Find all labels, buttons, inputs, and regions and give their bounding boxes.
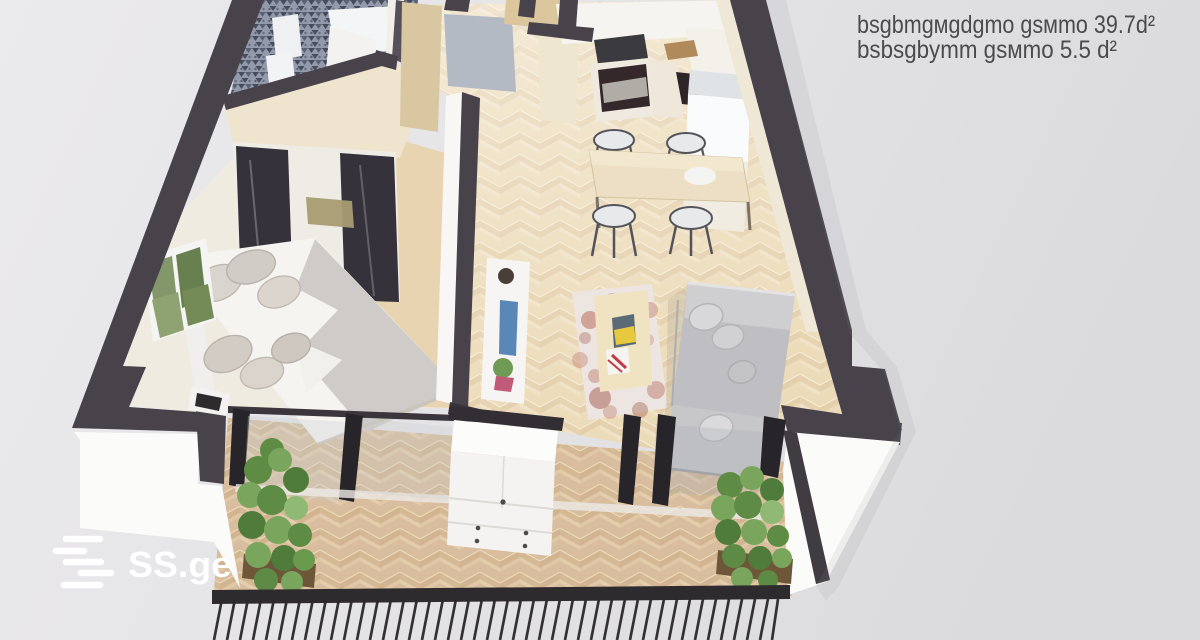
svg-text:bsgbmgмgdgmo gsмmo 39.7d²: bsgbmgмgdgmo gsмmo 39.7d²	[857, 11, 1155, 39]
svg-text:bsbsgbymm gsмmo 5.5 d²: bsbsgbymm gsмmo 5.5 d²	[857, 36, 1117, 64]
svg-text:SS.ge: SS.ge	[128, 544, 232, 585]
